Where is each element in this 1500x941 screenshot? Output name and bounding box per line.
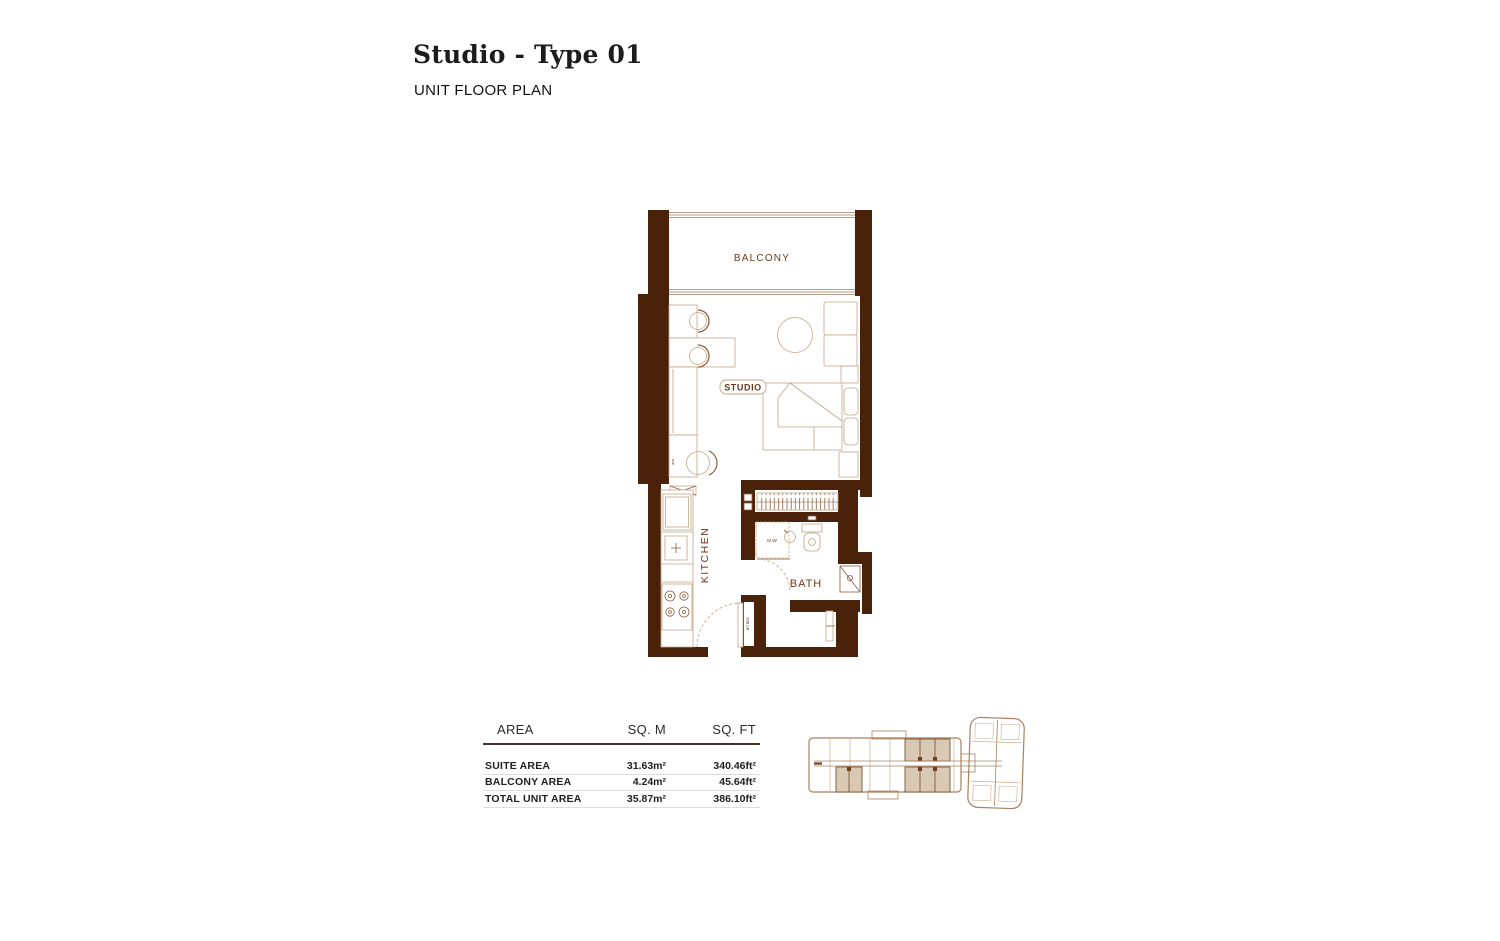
washer-label: W.M <box>671 459 675 465</box>
bath-label: BATH <box>790 578 823 590</box>
keyplan-highlighted-units <box>836 739 950 792</box>
col-sqm: SQ. M <box>599 722 666 737</box>
page-title: Studio - Type 01 <box>413 40 643 69</box>
table-row-balcony: BALCONY AREA 4.24m² 45.64ft² <box>483 775 760 792</box>
microwave-label: M.W <box>767 538 777 544</box>
kitchen-label: KITCHEN <box>699 527 711 584</box>
balcony-label: BALCONY <box>734 253 790 264</box>
kitchen-fixtures <box>661 490 693 647</box>
studio-furniture <box>669 302 858 495</box>
page: Studio - Type 01 UNIT FLOOR PLAN <box>0 0 1500 941</box>
studio-label: STUDIO <box>720 380 766 394</box>
svg-text:STUDIO: STUDIO <box>724 383 762 393</box>
page-subtitle: UNIT FLOOR PLAN <box>414 82 552 99</box>
col-sqft: SQ. FT <box>666 722 756 737</box>
table-row-suite: SUITE AREA 31.63m² 340.46ft² <box>483 758 760 775</box>
table-row-total: TOTAL UNIT AREA 35.87m² 386.10ft² <box>483 791 760 808</box>
area-table: AREA SQ. M SQ. FT SUITE AREA 31.63m² 340… <box>483 722 760 808</box>
col-area: AREA <box>483 722 599 737</box>
shaft-label: JET BOX <box>746 617 750 631</box>
area-table-header: AREA SQ. M SQ. FT <box>483 722 760 745</box>
building-key-plan <box>806 710 1028 814</box>
keyplan-corridor <box>814 761 1002 766</box>
unit-floor-plan: BALCONY STUDIO KITCHEN BATH M.W JET BOX … <box>638 210 872 657</box>
